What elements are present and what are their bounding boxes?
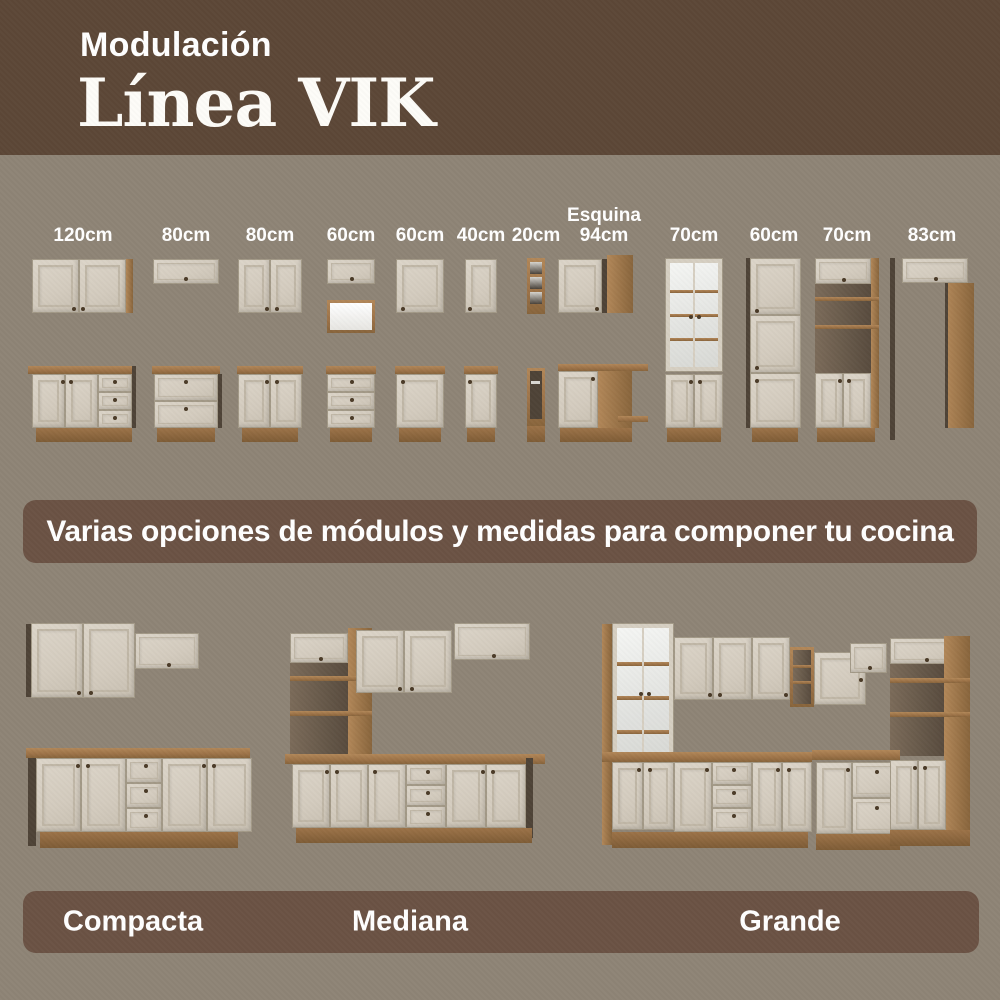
- kitchen-grande-graphic: [588, 612, 988, 860]
- header: Modulación Línea VIK: [0, 0, 1000, 155]
- page-title: Línea VIK: [77, 70, 435, 136]
- module-83cm-heladera: 83cm: [890, 200, 974, 445]
- banner-text: Varias opciones de módulos y medidas par…: [46, 517, 953, 547]
- kicker-text: Modulación: [80, 28, 272, 62]
- kitchen-name-label-grande: Grande: [739, 908, 841, 937]
- bottom-bar: Compacta Mediana Grande: [23, 891, 979, 953]
- module-80cm: 80cm: [237, 200, 303, 445]
- banner: Varias opciones de módulos y medidas par…: [23, 500, 977, 563]
- module-size-label-prefix: Esquina: [528, 206, 680, 226]
- page: Modulación Línea VIK 120cm 80cm 80cm: [0, 0, 1000, 1000]
- kitchen-mediana-graphic: [285, 612, 570, 860]
- module-size-label: 83cm: [860, 226, 1000, 246]
- kitchen-name-label-compacta: Compacta: [63, 908, 203, 937]
- kitchen-name-label-mediana: Mediana: [352, 908, 468, 937]
- kitchen-compacta-graphic: [20, 612, 256, 860]
- module-40cm: 40cm: [464, 200, 498, 445]
- module-70cm-vitrina: 70cm: [664, 200, 724, 445]
